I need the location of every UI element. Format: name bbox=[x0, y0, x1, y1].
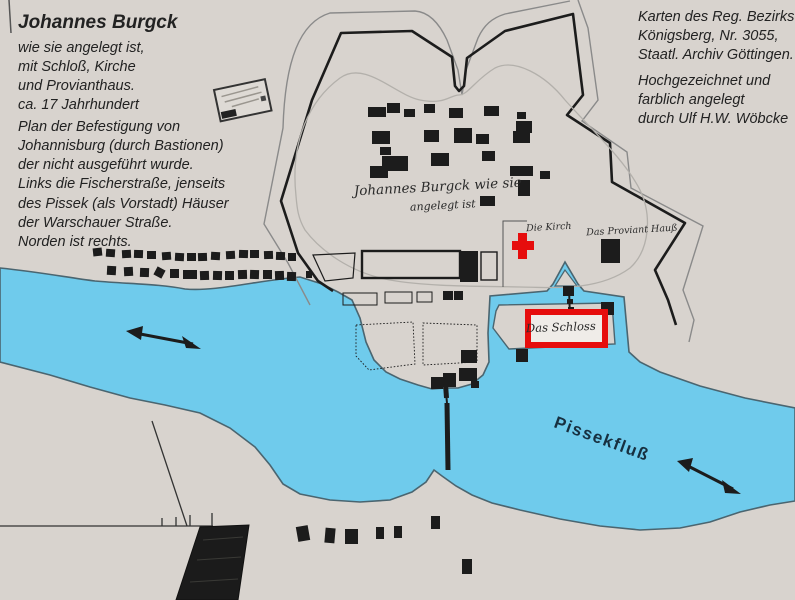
building bbox=[306, 271, 312, 278]
building bbox=[288, 253, 296, 261]
source-line: Königsberg, Nr. 3055, bbox=[638, 27, 794, 46]
building bbox=[471, 381, 479, 388]
river-bridge bbox=[446, 384, 449, 470]
building bbox=[540, 171, 550, 179]
building bbox=[424, 104, 435, 113]
building bbox=[601, 239, 620, 263]
building bbox=[484, 106, 499, 116]
building bbox=[449, 108, 463, 118]
building bbox=[238, 270, 247, 279]
building bbox=[162, 252, 172, 261]
building bbox=[198, 253, 207, 261]
historical-map: Johannes Burgck wie sieangelegt istDie K… bbox=[0, 0, 795, 600]
map-source-block: Karten des Reg. Bezirks Königsberg, Nr. … bbox=[638, 8, 794, 65]
building bbox=[404, 109, 415, 117]
building bbox=[380, 147, 391, 155]
building bbox=[107, 266, 116, 275]
building bbox=[454, 291, 463, 300]
source-line: Staatl. Archiv Göttingen. bbox=[638, 46, 794, 65]
building bbox=[263, 270, 272, 279]
building bbox=[187, 253, 196, 261]
building bbox=[324, 528, 335, 544]
building bbox=[394, 526, 402, 538]
building bbox=[250, 270, 259, 279]
credit-line: durch Ulf H.W. Wöbcke bbox=[638, 110, 788, 129]
building bbox=[513, 131, 530, 143]
building bbox=[517, 112, 526, 119]
building bbox=[287, 272, 296, 281]
building bbox=[372, 131, 390, 144]
description-line: Links die Fischerstraße, jenseits bbox=[18, 175, 229, 194]
map-description-block: Plan der Befestigung von Johannisburg (d… bbox=[18, 118, 229, 252]
building bbox=[239, 250, 248, 258]
building bbox=[225, 271, 234, 280]
building bbox=[431, 516, 440, 529]
building bbox=[276, 252, 285, 260]
building bbox=[376, 527, 384, 539]
building bbox=[140, 268, 149, 277]
building bbox=[183, 270, 197, 279]
building bbox=[459, 368, 477, 381]
title-line: und Provianthaus. bbox=[18, 77, 177, 96]
building bbox=[431, 153, 449, 166]
building bbox=[170, 269, 179, 278]
credit-line: farblich angelegt bbox=[638, 91, 788, 110]
map-title: Johannes Burgck bbox=[18, 10, 177, 35]
building bbox=[211, 252, 220, 260]
building bbox=[368, 107, 386, 117]
building bbox=[345, 529, 358, 544]
title-line: wie sie angelegt ist, bbox=[18, 39, 177, 58]
building bbox=[213, 271, 222, 280]
building bbox=[460, 251, 478, 282]
source-line: Karten des Reg. Bezirks bbox=[638, 8, 794, 27]
building bbox=[264, 251, 273, 259]
title-line: ca. 17 Jahrhundert bbox=[18, 96, 177, 115]
building bbox=[387, 103, 400, 113]
description-line: Norden ist rechts. bbox=[18, 233, 229, 252]
description-line: Johannisburg (durch Bastionen) bbox=[18, 137, 229, 156]
building bbox=[250, 250, 259, 258]
description-line: Plan der Befestigung von bbox=[18, 118, 229, 137]
description-line: der nicht ausgeführt wurde. bbox=[18, 156, 229, 175]
building bbox=[147, 251, 156, 259]
building bbox=[370, 166, 388, 178]
description-line: der Warschauer Straße. bbox=[18, 214, 229, 233]
building bbox=[296, 525, 310, 542]
building bbox=[424, 130, 439, 142]
schloss-label: Das Schloss bbox=[525, 319, 596, 335]
description-line: des Pissek (als Vorstadt) Häuser bbox=[18, 195, 229, 214]
building bbox=[454, 128, 472, 143]
credit-line: Hochgezeichnet und bbox=[638, 72, 788, 91]
building bbox=[482, 151, 495, 161]
building bbox=[443, 291, 453, 300]
building bbox=[124, 267, 133, 276]
map-title-block: Johannes Burgck wie sie angelegt ist, mi… bbox=[18, 10, 177, 116]
building bbox=[461, 350, 477, 363]
building bbox=[480, 196, 495, 206]
building bbox=[476, 134, 489, 144]
building bbox=[275, 271, 284, 280]
title-line: mit Schloß, Kirche bbox=[18, 58, 177, 77]
building bbox=[462, 559, 472, 574]
building bbox=[431, 377, 443, 389]
building bbox=[175, 253, 184, 261]
building bbox=[226, 251, 235, 259]
map-credit-block: Hochgezeichnet und farblich angelegt dur… bbox=[638, 72, 788, 129]
building bbox=[200, 271, 209, 280]
building bbox=[516, 349, 528, 362]
